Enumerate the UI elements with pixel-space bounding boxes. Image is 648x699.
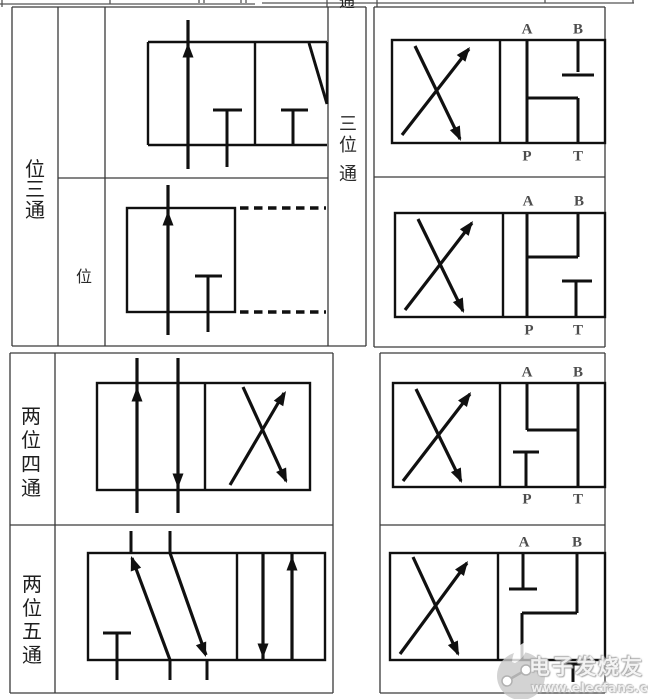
row3-label-char: 四 (21, 455, 41, 475)
down-arrowhead (258, 644, 269, 659)
diagram-canvas (0, 0, 648, 699)
up-arrowhead (163, 211, 174, 226)
port-label-p: P (524, 324, 533, 339)
row-group-label-char: 通 (25, 201, 45, 221)
row-group-label-char: 位 (25, 160, 45, 180)
watermark-site-name: 电子发烧友 (529, 651, 644, 681)
row2-sub-label: 位 (76, 270, 92, 286)
down-arrowhead (453, 298, 469, 316)
middle-column-label-char: 通 (339, 165, 357, 183)
row4-label-char: 通 (22, 646, 42, 666)
valve-symbol-row3-right (393, 383, 605, 487)
up-arrowhead (183, 43, 194, 58)
down-arrowhead (448, 641, 464, 659)
down-arrowhead (450, 126, 466, 144)
port-label-a: A (519, 536, 530, 551)
port-label-b: B (573, 23, 583, 38)
row4-label-char: 五 (22, 622, 42, 642)
valve-symbol-row3-left (97, 358, 310, 513)
port-label-a: A (522, 23, 533, 38)
down-arrowhead (276, 468, 292, 486)
valve-symbol-table-image: 通 位 三 通 位 三 位 通 两 位 四 通 两 位 五 通 A B P T … (0, 0, 648, 699)
down-arrowhead (196, 641, 211, 658)
row4-label-char: 位 (22, 599, 42, 619)
middle-column-label-char: 位 (339, 136, 357, 154)
port-label-t: T (573, 324, 583, 339)
down-arrowhead (173, 474, 184, 489)
row4-label-char: 两 (22, 575, 42, 595)
port-label-b: B (574, 195, 584, 210)
down-arrowhead (451, 468, 467, 486)
row-group-label-char: 三 (25, 180, 45, 200)
port-label-p: P (522, 493, 531, 508)
up-arrowhead (132, 387, 143, 402)
middle-column-label-char: 三 (339, 115, 357, 133)
row3-label-char: 位 (21, 431, 41, 451)
port-label-t: T (573, 493, 583, 508)
port-label-b: B (572, 536, 582, 551)
up-arrowhead (126, 554, 141, 571)
port-label-t: T (573, 150, 583, 165)
valve-symbol-row1-right (392, 40, 605, 143)
clipped-header-char: 通 (339, 0, 355, 12)
table-grid (0, 0, 634, 693)
watermark-site-url: www.elecfans.com (531, 680, 648, 695)
up-arrowhead (287, 556, 298, 571)
port-label-b: B (573, 366, 583, 381)
valve-symbol-row2-left (127, 185, 326, 335)
valve-symbol-row2-right (395, 213, 605, 317)
valve-symbol-row1-left (148, 20, 327, 169)
top-remnant-lines (0, 0, 634, 7)
port-label-a: A (523, 195, 534, 210)
port-label-p: P (522, 150, 531, 165)
row3-label-char: 两 (21, 407, 41, 427)
port-label-a: A (522, 366, 533, 381)
row3-label-char: 通 (21, 479, 41, 499)
valve-symbol-row4-left (88, 531, 325, 680)
